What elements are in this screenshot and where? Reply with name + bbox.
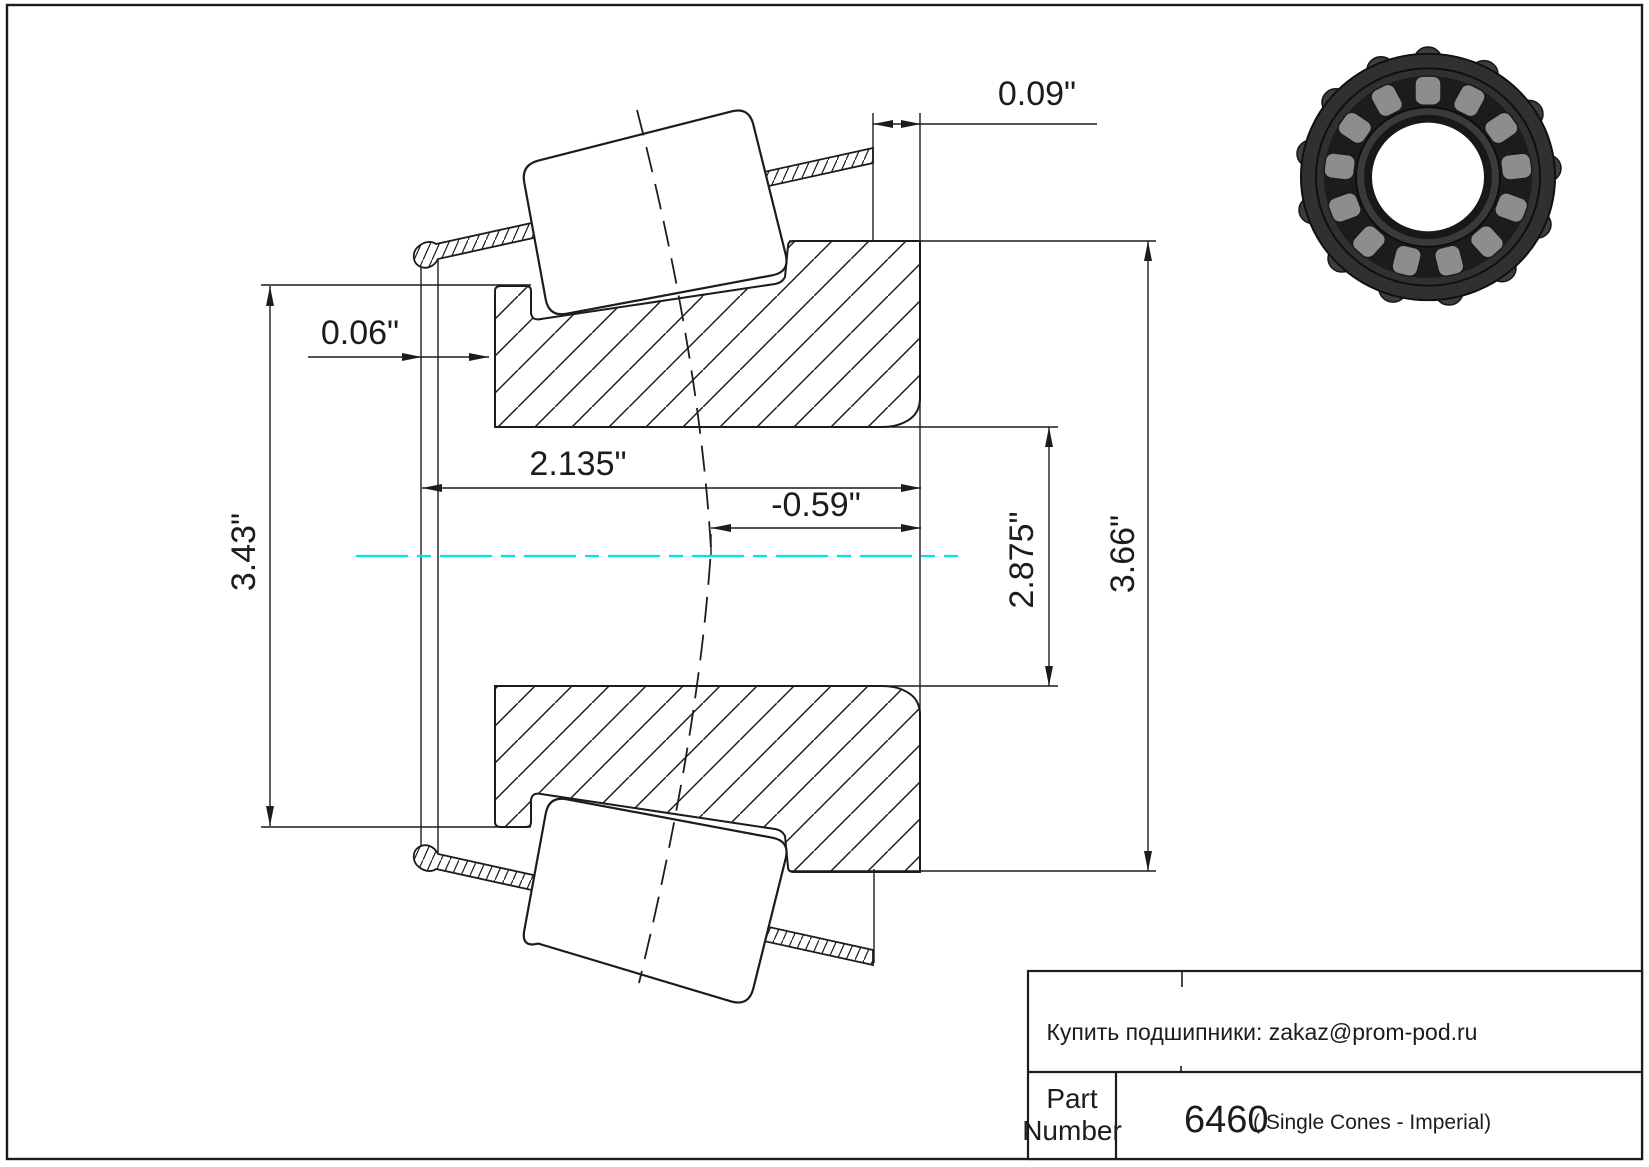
- roller-top: [524, 111, 787, 315]
- dim-bore-diameter: 2.875": [1003, 511, 1041, 608]
- dim-effective-center: -0.59": [771, 486, 861, 524]
- title-block-contact-text: Купить подшипники: zakaz@prom-pod.ru: [1047, 1019, 1478, 1045]
- dim-cage-back-offset: 0.09": [998, 75, 1076, 113]
- title-block: Купить подшипники: zakaz@prom-pod.ru Par…: [1022, 971, 1642, 1159]
- dim-cone-width: 2.135": [529, 445, 626, 483]
- dim-outer-diameter: 3.66": [1104, 515, 1142, 593]
- bearing-photo-bore: [1372, 123, 1484, 232]
- part-number-label-line1: Part: [1046, 1083, 1098, 1114]
- dim-cage-front-offset: 0.06": [321, 314, 399, 352]
- dim-cage-diameter: 3.43": [225, 513, 263, 591]
- part-series-note: ( Single Cones - Imperial): [1253, 1111, 1491, 1134]
- drawing-page: 0.09" 0.06" 2.135" -0.59" 3.43" 2.875" 3…: [0, 0, 1649, 1167]
- bearing-drawing-canvas: 0.09" 0.06" 2.135" -0.59" 3.43" 2.875" 3…: [0, 0, 1649, 1167]
- bearing-photo: [1297, 47, 1561, 305]
- roller-bottom: [524, 799, 787, 1003]
- part-number-label-line2: Number: [1022, 1115, 1122, 1146]
